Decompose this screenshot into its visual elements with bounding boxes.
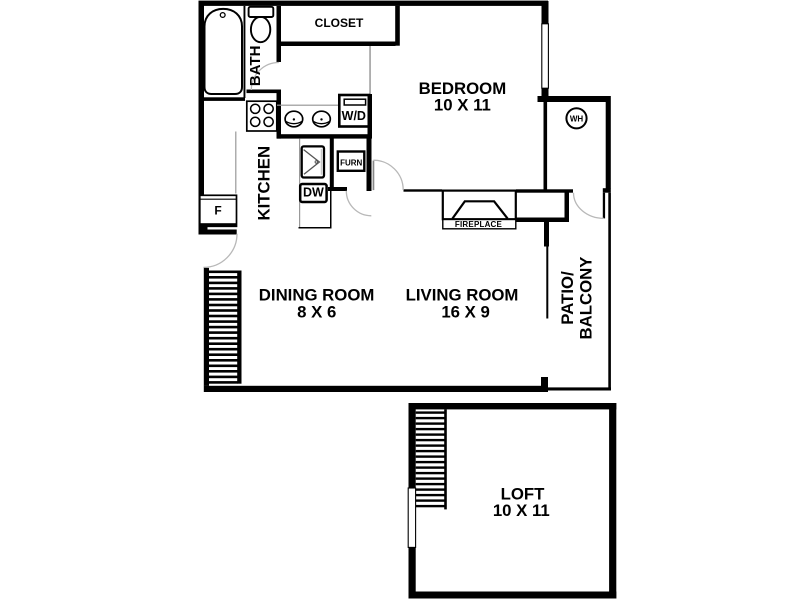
svg-text:DW: DW <box>303 186 324 200</box>
svg-text:10 X 11: 10 X 11 <box>434 96 491 115</box>
svg-text:FURN: FURN <box>340 158 362 167</box>
svg-text:WH: WH <box>570 114 584 123</box>
svg-text:F: F <box>214 204 221 218</box>
svg-text:8 X 6: 8 X 6 <box>297 302 336 321</box>
svg-text:FIREPLACE: FIREPLACE <box>455 220 503 229</box>
svg-text:BATH: BATH <box>247 46 264 87</box>
svg-text:10 X 11: 10 X 11 <box>493 501 550 520</box>
svg-text:W/D: W/D <box>342 109 366 123</box>
svg-text:BALCONY: BALCONY <box>577 257 596 340</box>
svg-text:PATIO/: PATIO/ <box>558 271 577 325</box>
svg-text:KITCHEN: KITCHEN <box>254 146 273 221</box>
svg-text:CLOSET: CLOSET <box>315 16 364 30</box>
svg-text:16 X 9: 16 X 9 <box>441 302 490 321</box>
